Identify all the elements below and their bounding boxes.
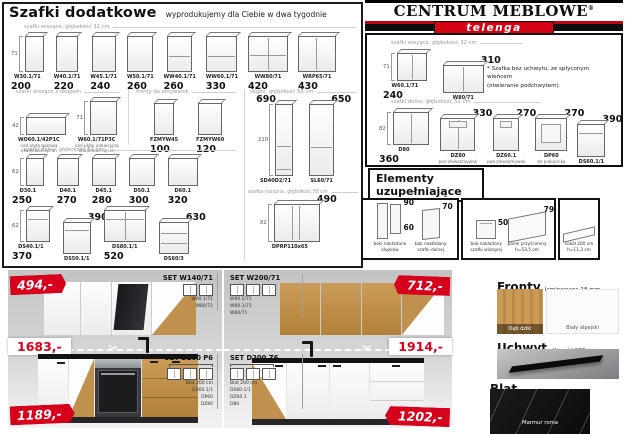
cabinet-item: 71W60.1/71P3Cnad płytę indukcyjnąotwiera… <box>75 97 119 154</box>
cabinet-price: 270 <box>57 196 77 206</box>
dimension-label: 71 <box>76 101 88 135</box>
cabinet-code: DS40.1/1 <box>18 244 43 250</box>
cabinet-item: 62D30.1250 <box>12 154 44 206</box>
cabinet-price: 300 <box>129 196 149 206</box>
scissors-icon: ✂ <box>362 341 372 355</box>
set-component: W60.1/71 <box>230 304 298 311</box>
cabinet-item: WW40.1/71260 <box>164 32 196 92</box>
plinth-diagram <box>563 230 595 239</box>
cabinet-item: W50.1/71260 <box>127 32 154 92</box>
cabinet-code: D80 <box>398 147 409 153</box>
group-base-cabinets-a: 62D30.1250D40.1270D45.1280D50.1300D60.13… <box>12 154 198 206</box>
cabinet-icon <box>246 284 260 296</box>
worktop-bracket <box>169 364 213 367</box>
cabinet-diagram <box>26 210 50 242</box>
cabinet-diagram <box>298 36 336 72</box>
worktop-swatch-marble: Marmur roma <box>490 389 590 434</box>
oven-cutout <box>541 124 561 142</box>
combo-price: 1683,- <box>8 338 71 355</box>
divider <box>128 89 129 145</box>
section-label-okap: szafki wiszące z okapem <box>16 89 120 95</box>
set-component: DZ80 <box>145 402 213 409</box>
dimension-label: 71 <box>11 36 23 72</box>
worktop-bracket <box>230 364 274 367</box>
section-label-r-wiszace: szafki wiszące, głębokość 32 cm <box>391 40 523 46</box>
cabinet-code: FZMYW45 <box>150 137 178 143</box>
cabinet-code: DS60/3 <box>164 256 184 262</box>
elements-box-2: 50 bok nakładany szafki wiszącej 79 pane… <box>461 198 556 260</box>
cabinet-note: do piekarnika <box>537 159 565 164</box>
combo-price: 1914,- <box>389 338 452 355</box>
cabinet-item: D50.1300 <box>129 154 155 206</box>
cabinet-icon <box>183 368 197 380</box>
element-bok-dolnej: 70 bok nakładany szafki dolnej <box>415 209 447 254</box>
cabinet-code: WW40.1/71 <box>164 74 196 80</box>
cabinet-item: 62DS40.1/1370 <box>12 206 50 262</box>
set-name: SET W200/71 <box>230 274 298 282</box>
front-swatch-white: Biały alpejski <box>546 289 619 334</box>
cabinet-diagram <box>159 222 189 254</box>
element-bok-wiszacej: 50 bok nakładany szafki wiszącej <box>470 220 502 254</box>
set-component: DS60.1/1 <box>230 388 298 395</box>
sink-cutout <box>449 121 466 128</box>
scissors-icon: ✂ <box>108 341 118 355</box>
set-name: SET W140/71 <box>145 274 213 282</box>
cabinet-code: DS80.1/1 <box>112 244 137 250</box>
wall-panel-diagram: 79 <box>508 215 546 239</box>
dimension-label: 210 <box>258 104 273 176</box>
cabinet-item: 210690SD40D2/71 <box>258 100 293 184</box>
cabinet-item: WRP65/71430 <box>298 32 336 92</box>
element-boki-slupkow: 90 60 boki nakładane słupków <box>374 201 407 254</box>
price-badge: 494,- <box>10 274 67 295</box>
cabinet-code: W40.1/71 <box>54 74 81 80</box>
cabinet-code: DPRP110x65 <box>272 244 308 250</box>
cabinet-icon <box>262 368 276 380</box>
cabinet-diagram <box>154 103 174 135</box>
additional-cabinets-panel: Szafki dodatkowe wyprodukujemy dla Ciebi… <box>2 2 363 268</box>
cabinet-diagram <box>92 36 116 72</box>
cabinet-icon <box>167 368 181 380</box>
handle-bar <box>509 355 604 373</box>
divider <box>244 89 245 261</box>
cabinet-item: 71W30.1/71200 <box>11 32 44 92</box>
cabinet-diagram <box>127 36 153 72</box>
cabinet-diagram <box>274 204 320 242</box>
cabinet-diagram <box>26 117 66 135</box>
cabinet-icon <box>230 368 244 380</box>
set-component: DZ60.1 <box>230 395 298 402</box>
cabinet-icon <box>199 284 213 296</box>
cabinet-diagram <box>206 36 237 72</box>
kitchen-photo-1: ✂ 1683,- 494,- 1189,- SET W140/71W60.1/7… <box>8 270 222 428</box>
cabinet-price: 690 <box>256 95 276 105</box>
set-component: D80 <box>230 402 298 409</box>
elements-box-3: cokół 200 cm h=11,3 cm <box>558 198 600 260</box>
front-swatch-wood: Dąb dziki <box>497 289 543 334</box>
panel-diagram: 70 <box>422 209 440 239</box>
cabinet-diagram <box>168 158 198 186</box>
cabinet-item: 390DS60.1/1 <box>577 120 605 165</box>
dimension-label: 62 <box>12 158 24 186</box>
cabinet-item: 270DP60do piekarnika <box>535 114 567 164</box>
cabinet-item: 310W80/71 <box>443 61 484 101</box>
cabinet-code: D45.1 <box>96 188 113 194</box>
set-component: W60.1/71 <box>230 297 298 304</box>
cabinet-diagram <box>26 158 44 186</box>
cabinet-icon <box>199 368 213 380</box>
set-name: SET D200 P6 <box>145 354 213 362</box>
group-r-base-cabinets: 82D80360330DZ80pod zlewozmywak270DZ60.1p… <box>379 108 605 165</box>
cabinet-diagram <box>275 104 293 176</box>
cabinet-icon <box>230 284 244 296</box>
kitchen-photo-2: ✂ 1914,- 712,- 1202,- SET W200/71W60.1/7… <box>224 270 452 428</box>
cabinet-diagram <box>397 53 427 81</box>
cabinet-code: FZMYW60 <box>196 137 224 143</box>
section-label-narozna: szafka narożna, głębokość 58 cm <box>248 190 358 195</box>
cabinet-code: WRP65/71 <box>303 74 332 80</box>
cabinet-code: DS60.1/1 <box>579 159 604 165</box>
cabinet-diagram <box>393 112 429 145</box>
cabinet-item: DS80.1/1520 <box>104 206 146 262</box>
cabinet-code: D40.1 <box>60 188 77 194</box>
group-hood-cabinets: 42WO60.1/42P1Cnad płytę gazowąotwieranie… <box>12 97 119 154</box>
cabinet-code: D50.1 <box>134 188 151 194</box>
dimension-label: 71 <box>383 53 395 81</box>
cabinet-note: pod zlewozmywak <box>487 159 525 164</box>
cabinet-diagram <box>535 118 567 151</box>
set-label: SET D200 P6Blat 200 cmDS60.1/1DP60DZ80 <box>145 354 218 409</box>
set-component: W60.1/71 <box>145 297 213 304</box>
page-title: Szafki dodatkowe <box>9 5 157 21</box>
group-r-wall-cabinets: 71W60.1/71240310W80/71 <box>383 49 484 101</box>
cabinet-code: D30.1 <box>20 188 37 194</box>
price-badge: 1202,- <box>385 406 450 427</box>
cabinet-code: SD40D2/71 <box>260 178 291 184</box>
set-component: DP60 <box>145 395 213 402</box>
cabinet-diagram <box>577 124 605 157</box>
group-corner-cabinet: 82490DPRP110x65 <box>260 200 320 250</box>
group-wall-cabinets: 71W30.1/71200W40.1/71220W45.1/71240W50.1… <box>11 32 336 92</box>
cabinet-code: W50.1/71 <box>127 74 154 80</box>
cabinet-diagram <box>248 36 288 72</box>
cabinet-diagram <box>92 158 116 186</box>
cabinet-code: SL60/71 <box>310 178 333 184</box>
catalog-page: Szafki dodatkowe wyprodukujemy dla Ciebi… <box>0 0 625 434</box>
cabinet-code: WW60.1/71 <box>206 74 238 80</box>
cabinet-diagram <box>198 103 222 135</box>
cabinet-diagram <box>104 210 146 242</box>
cabinet-item: 650SL60/71 <box>309 100 334 184</box>
cabinet-item: 270DZ60.1pod zlewozmywak <box>487 114 525 164</box>
section-label-r-dolne: szafki dolne, głębokość 51 cm <box>391 99 541 105</box>
oven <box>95 359 140 417</box>
element-cokol: cokół 200 cm h=11,3 cm <box>563 230 595 254</box>
panel-header: Szafki dodatkowe wyprodukujemy dla Ciebi… <box>9 5 327 21</box>
set-component: Blat 200 cm <box>230 381 298 388</box>
set-label: SET W200/71W60.1/71W60.1/71W80/71 <box>230 274 303 318</box>
cabinet-item: 630DS60/3 <box>159 218 189 262</box>
cabinet-price: 520 <box>104 252 124 262</box>
cabinet-diagram <box>440 118 475 151</box>
cabinet-diagram <box>493 118 519 151</box>
cabinet-item: W40.1/71220 <box>54 32 81 92</box>
cabinet-note: pod zlewozmywak <box>439 159 477 164</box>
cabinet-item: D45.1280 <box>92 154 116 206</box>
cabinet-icon <box>183 284 197 296</box>
white-cabinets-panel: szafki wiszące, głębokość 32 cm 71W60.1/… <box>365 33 623 167</box>
cooker-hood <box>114 284 149 330</box>
group-base-cabinets-b: 62DS40.1/1370390DS50.1/1DS80.1/1520630DS… <box>12 206 189 262</box>
section-label-dolne: szafki dolne, głębokość 51 cm <box>24 147 236 153</box>
cabinet-diagram <box>57 158 79 186</box>
cabinet-item: D60.1320 <box>168 154 198 206</box>
handle-note: * Szafka bez uchwytu, ze spłyconym wieńc… <box>487 65 616 90</box>
set-name: SET D200 Z6 <box>230 354 298 362</box>
cabinet-diagram <box>56 36 78 72</box>
set-component: W80/71 <box>230 311 298 318</box>
cabinet-price: 250 <box>12 196 32 206</box>
cabinet-code: WW80/71 <box>255 74 282 80</box>
cabinet-code: W30.1/71 <box>14 74 41 80</box>
cabinet-item: W45.1/71240 <box>90 32 117 92</box>
dimension-label: 62 <box>12 210 24 242</box>
element-panel-przyscienny: 79 panel przyścienny h=53,5 cm <box>508 215 547 254</box>
faucet <box>310 341 313 357</box>
cabinet-price: 320 <box>168 196 188 206</box>
cabinet-diagram <box>309 104 334 176</box>
set-label: SET D200 Z6Blat 200 cmDS60.1/1DZ60.1D80 <box>230 354 303 409</box>
logo-name: CENTRUM MEBLOWE® <box>365 4 623 20</box>
group-tall-cabinets: 210690SD40D2/71650SL60/71 <box>258 100 334 184</box>
cabinet-item: WW80/71420 <box>248 32 288 92</box>
cabinet-diagram <box>167 36 192 72</box>
elements-box-1: 90 60 boki nakładane słupków 70 bok nakł… <box>361 198 459 260</box>
dimension-label: 82 <box>260 204 272 242</box>
cabinet-diagram <box>129 158 155 186</box>
cabinet-code: W45.1/71 <box>90 74 117 80</box>
set-label: SET W140/71W60.1/71W80/71 <box>145 274 218 311</box>
cabinet-price: 370 <box>12 252 32 262</box>
set-component: W80/71 <box>145 304 213 311</box>
section-label-wiszace: szafki wiszące, głębokość 32 cm <box>24 24 356 30</box>
cabinet-price: 280 <box>92 196 112 206</box>
faucet <box>146 337 149 353</box>
cabinet-price: 360 <box>379 155 399 165</box>
section-label-fronty: fronty do zmywarek <box>136 89 236 95</box>
dimension-label: 82 <box>379 112 391 145</box>
cabinet-item: 390DS50.1/1 <box>63 218 91 262</box>
price-badge: 1189,- <box>10 404 76 426</box>
cabinet-item: D40.1270 <box>57 154 79 206</box>
side-panels-diagram: 90 60 <box>377 201 403 239</box>
sink-cutout <box>500 121 513 128</box>
cabinet-diagram <box>90 101 117 135</box>
set-component: Blat 200 cm <box>145 381 213 388</box>
cabinet-icon <box>262 284 276 296</box>
dimension-label: 42 <box>12 117 24 135</box>
cabinet-item: 71W60.1/71240 <box>383 49 427 101</box>
cabinet-item: 330DZ80pod zlewozmywak <box>439 114 477 164</box>
cabinet-code: DS50.1/1 <box>64 256 89 262</box>
cabinet-item: WW60.1/71330 <box>206 32 238 92</box>
cabinet-item: 82D80360 <box>379 108 429 165</box>
cabinet-code: D60.1 <box>175 188 192 194</box>
cabinet-diagram <box>25 36 44 72</box>
price-badge: 712,- <box>394 275 451 296</box>
logo-centrum-meblowe: CENTRUM MEBLOWE® telenga <box>365 0 623 35</box>
page-subtitle: wyprodukujemy dla Ciebie w dwa tygodnie <box>166 10 327 19</box>
cabinet-item: 82490DPRP110x65 <box>260 200 320 250</box>
small-cabinet-diagram: 50 <box>476 220 496 239</box>
cabinet-code: W60.1/71 <box>392 83 419 89</box>
cabinet-diagram <box>443 65 484 93</box>
cabinet-diagram <box>63 222 91 254</box>
handle-photo <box>497 349 619 379</box>
set-component: DS60.1/1 <box>145 388 213 395</box>
cabinet-icon <box>246 368 260 380</box>
